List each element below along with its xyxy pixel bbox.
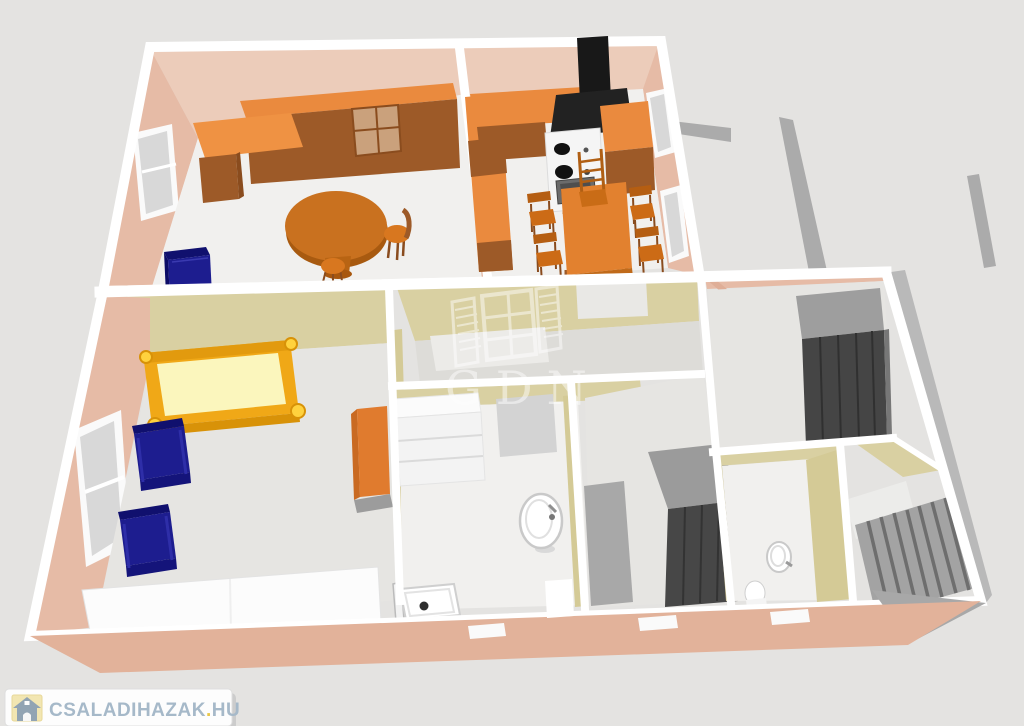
floor-plan-render: GDN CSALADIHAZAK.HU: [0, 0, 1024, 726]
dressing-room: [705, 271, 893, 449]
armchair-2: [118, 504, 177, 577]
stove-knob-1: [584, 148, 589, 153]
bed-post-2: [285, 338, 297, 350]
stove-burner-2: [555, 165, 573, 179]
desk-pedestal: [199, 154, 239, 203]
floor-plan-canvas: GDN CSALADIHAZAK.HU: [0, 0, 1024, 726]
dresser-front: [396, 412, 485, 486]
bed-post-4: [291, 404, 305, 418]
branding-logo: CSALADIHAZAK.HU: [5, 689, 240, 726]
counter-top-front: [477, 122, 548, 161]
house-icon: [12, 695, 42, 721]
front-door-opening: [545, 579, 574, 618]
armchair-1: [132, 418, 191, 491]
shower-drain: [420, 602, 429, 611]
corner-wardrobe-top: [796, 288, 884, 339]
house-window: [25, 701, 30, 705]
ladder-chair-seat: [579, 189, 608, 207]
bed-post-1: [140, 351, 152, 363]
stove-burner-1: [554, 143, 570, 155]
logo-text: CSALADIHAZAK.HU: [49, 700, 240, 721]
round-table-top: [285, 191, 387, 261]
small-washbasin: [767, 542, 792, 572]
watermark-text: GDN: [445, 361, 601, 415]
counter-left-base: [477, 240, 513, 272]
corner-wardrobe: [796, 288, 892, 446]
counter-right: [600, 101, 653, 152]
stool-seat: [321, 258, 345, 274]
wc: [714, 444, 853, 609]
house-door: [23, 713, 31, 722]
